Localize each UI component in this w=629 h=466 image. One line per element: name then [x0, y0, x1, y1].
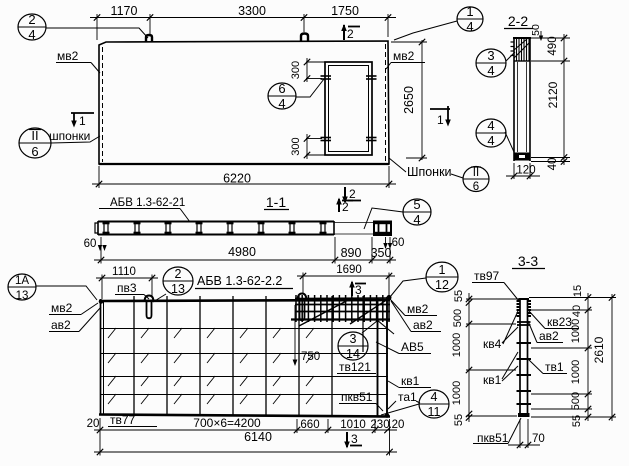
- svg-text:1000: 1000: [570, 360, 582, 384]
- svg-text:55: 55: [453, 414, 465, 426]
- svg-text:тв77: тв77: [110, 413, 136, 427]
- svg-text:АБВ 1.3-62-2.2: АБВ 1.3-62-2.2: [197, 274, 282, 288]
- svg-text:пкв51: пкв51: [477, 431, 509, 445]
- svg-text:кв1: кв1: [483, 373, 502, 387]
- svg-text:1010: 1010: [340, 419, 366, 431]
- svg-text:13: 13: [171, 282, 185, 296]
- svg-text:750: 750: [301, 351, 320, 363]
- svg-text:II: II: [31, 128, 38, 143]
- svg-text:6: 6: [473, 181, 479, 193]
- svg-text:12: 12: [435, 278, 449, 292]
- svg-text:700×6=4200: 700×6=4200: [193, 416, 261, 430]
- svg-text:2: 2: [347, 27, 354, 41]
- svg-text:40: 40: [571, 305, 583, 317]
- svg-text:1170: 1170: [111, 4, 138, 18]
- svg-text:4: 4: [278, 96, 285, 111]
- svg-text:II: II: [473, 167, 479, 179]
- svg-text:АВ5: АВ5: [401, 340, 424, 354]
- svg-text:3: 3: [487, 48, 494, 63]
- svg-text:500: 500: [452, 309, 464, 327]
- svg-text:1А: 1А: [15, 275, 29, 287]
- svg-text:1690: 1690: [336, 264, 362, 276]
- svg-text:490: 490: [547, 36, 559, 55]
- svg-text:6140: 6140: [244, 430, 272, 444]
- svg-text:мв2: мв2: [407, 302, 429, 316]
- svg-text:6220: 6220: [223, 172, 251, 186]
- svg-text:1: 1: [437, 113, 444, 127]
- svg-text:мв2: мв2: [57, 49, 79, 63]
- svg-text:тв1: тв1: [545, 360, 564, 374]
- svg-text:2-2: 2-2: [508, 13, 528, 29]
- svg-text:тв97: тв97: [474, 269, 500, 283]
- svg-text:4980: 4980: [228, 245, 256, 259]
- svg-text:1-1: 1-1: [266, 194, 286, 210]
- svg-text:пв3: пв3: [117, 281, 137, 295]
- svg-text:230: 230: [370, 419, 389, 431]
- svg-text:2: 2: [175, 267, 182, 281]
- svg-text:3-3: 3-3: [518, 253, 538, 269]
- svg-text:6: 6: [31, 144, 38, 159]
- svg-text:та1: та1: [398, 390, 417, 404]
- svg-text:кв23: кв23: [547, 315, 572, 329]
- svg-text:2: 2: [342, 200, 349, 214]
- svg-text:2: 2: [349, 187, 356, 201]
- svg-text:70: 70: [532, 433, 545, 445]
- svg-text:13: 13: [16, 290, 29, 302]
- svg-text:пкв51: пкв51: [341, 390, 373, 404]
- svg-text:55: 55: [453, 290, 465, 302]
- svg-text:2: 2: [28, 12, 35, 27]
- svg-text:кв4: кв4: [483, 337, 502, 351]
- svg-text:20: 20: [87, 418, 100, 430]
- svg-text:300: 300: [290, 61, 302, 79]
- svg-text:2610: 2610: [592, 336, 606, 363]
- svg-text:3300: 3300: [238, 4, 266, 18]
- svg-text:4: 4: [487, 118, 494, 133]
- svg-text:АБВ 1.3-62-21: АБВ 1.3-62-21: [110, 197, 185, 209]
- svg-text:660: 660: [300, 419, 319, 431]
- svg-text:500: 500: [570, 392, 582, 410]
- svg-text:5: 5: [413, 197, 420, 212]
- svg-text:120: 120: [516, 165, 535, 177]
- svg-text:60: 60: [392, 237, 405, 249]
- svg-text:ав2: ав2: [51, 318, 71, 332]
- svg-text:40: 40: [547, 158, 559, 171]
- svg-text:300: 300: [290, 137, 302, 155]
- svg-text:50: 50: [530, 24, 542, 36]
- svg-text:Шпонки: Шпонки: [407, 165, 452, 179]
- svg-text:1: 1: [79, 114, 86, 128]
- svg-text:кв1: кв1: [401, 374, 420, 388]
- svg-text:60: 60: [84, 238, 97, 250]
- svg-text:6: 6: [278, 81, 285, 96]
- svg-text:тв121: тв121: [339, 360, 371, 374]
- svg-text:4: 4: [28, 27, 35, 42]
- svg-text:14: 14: [346, 347, 360, 361]
- svg-text:1: 1: [466, 4, 473, 19]
- svg-text:4: 4: [413, 212, 420, 227]
- svg-text:3: 3: [351, 432, 358, 446]
- svg-text:ав2: ав2: [413, 318, 433, 332]
- svg-text:мв2: мв2: [393, 49, 415, 63]
- svg-text:4: 4: [466, 19, 473, 34]
- svg-text:1: 1: [439, 263, 446, 277]
- svg-text:11: 11: [428, 405, 441, 419]
- svg-text:15: 15: [572, 285, 584, 297]
- svg-text:4: 4: [431, 390, 438, 404]
- svg-text:20: 20: [392, 419, 405, 431]
- svg-text:шпонки: шпонки: [49, 129, 90, 143]
- svg-text:2120: 2120: [546, 81, 560, 108]
- svg-text:4: 4: [487, 133, 494, 148]
- svg-text:1110: 1110: [112, 266, 136, 278]
- svg-text:350: 350: [371, 246, 392, 260]
- svg-text:4: 4: [487, 63, 494, 78]
- svg-text:1750: 1750: [331, 4, 359, 18]
- svg-text:2650: 2650: [402, 86, 416, 114]
- svg-text:ав2: ав2: [539, 329, 559, 343]
- svg-text:890: 890: [341, 246, 362, 260]
- svg-text:1000: 1000: [451, 333, 463, 357]
- svg-text:3: 3: [350, 332, 357, 346]
- svg-text:1000: 1000: [451, 381, 463, 405]
- svg-text:3: 3: [355, 283, 362, 297]
- svg-text:мв2: мв2: [51, 301, 73, 315]
